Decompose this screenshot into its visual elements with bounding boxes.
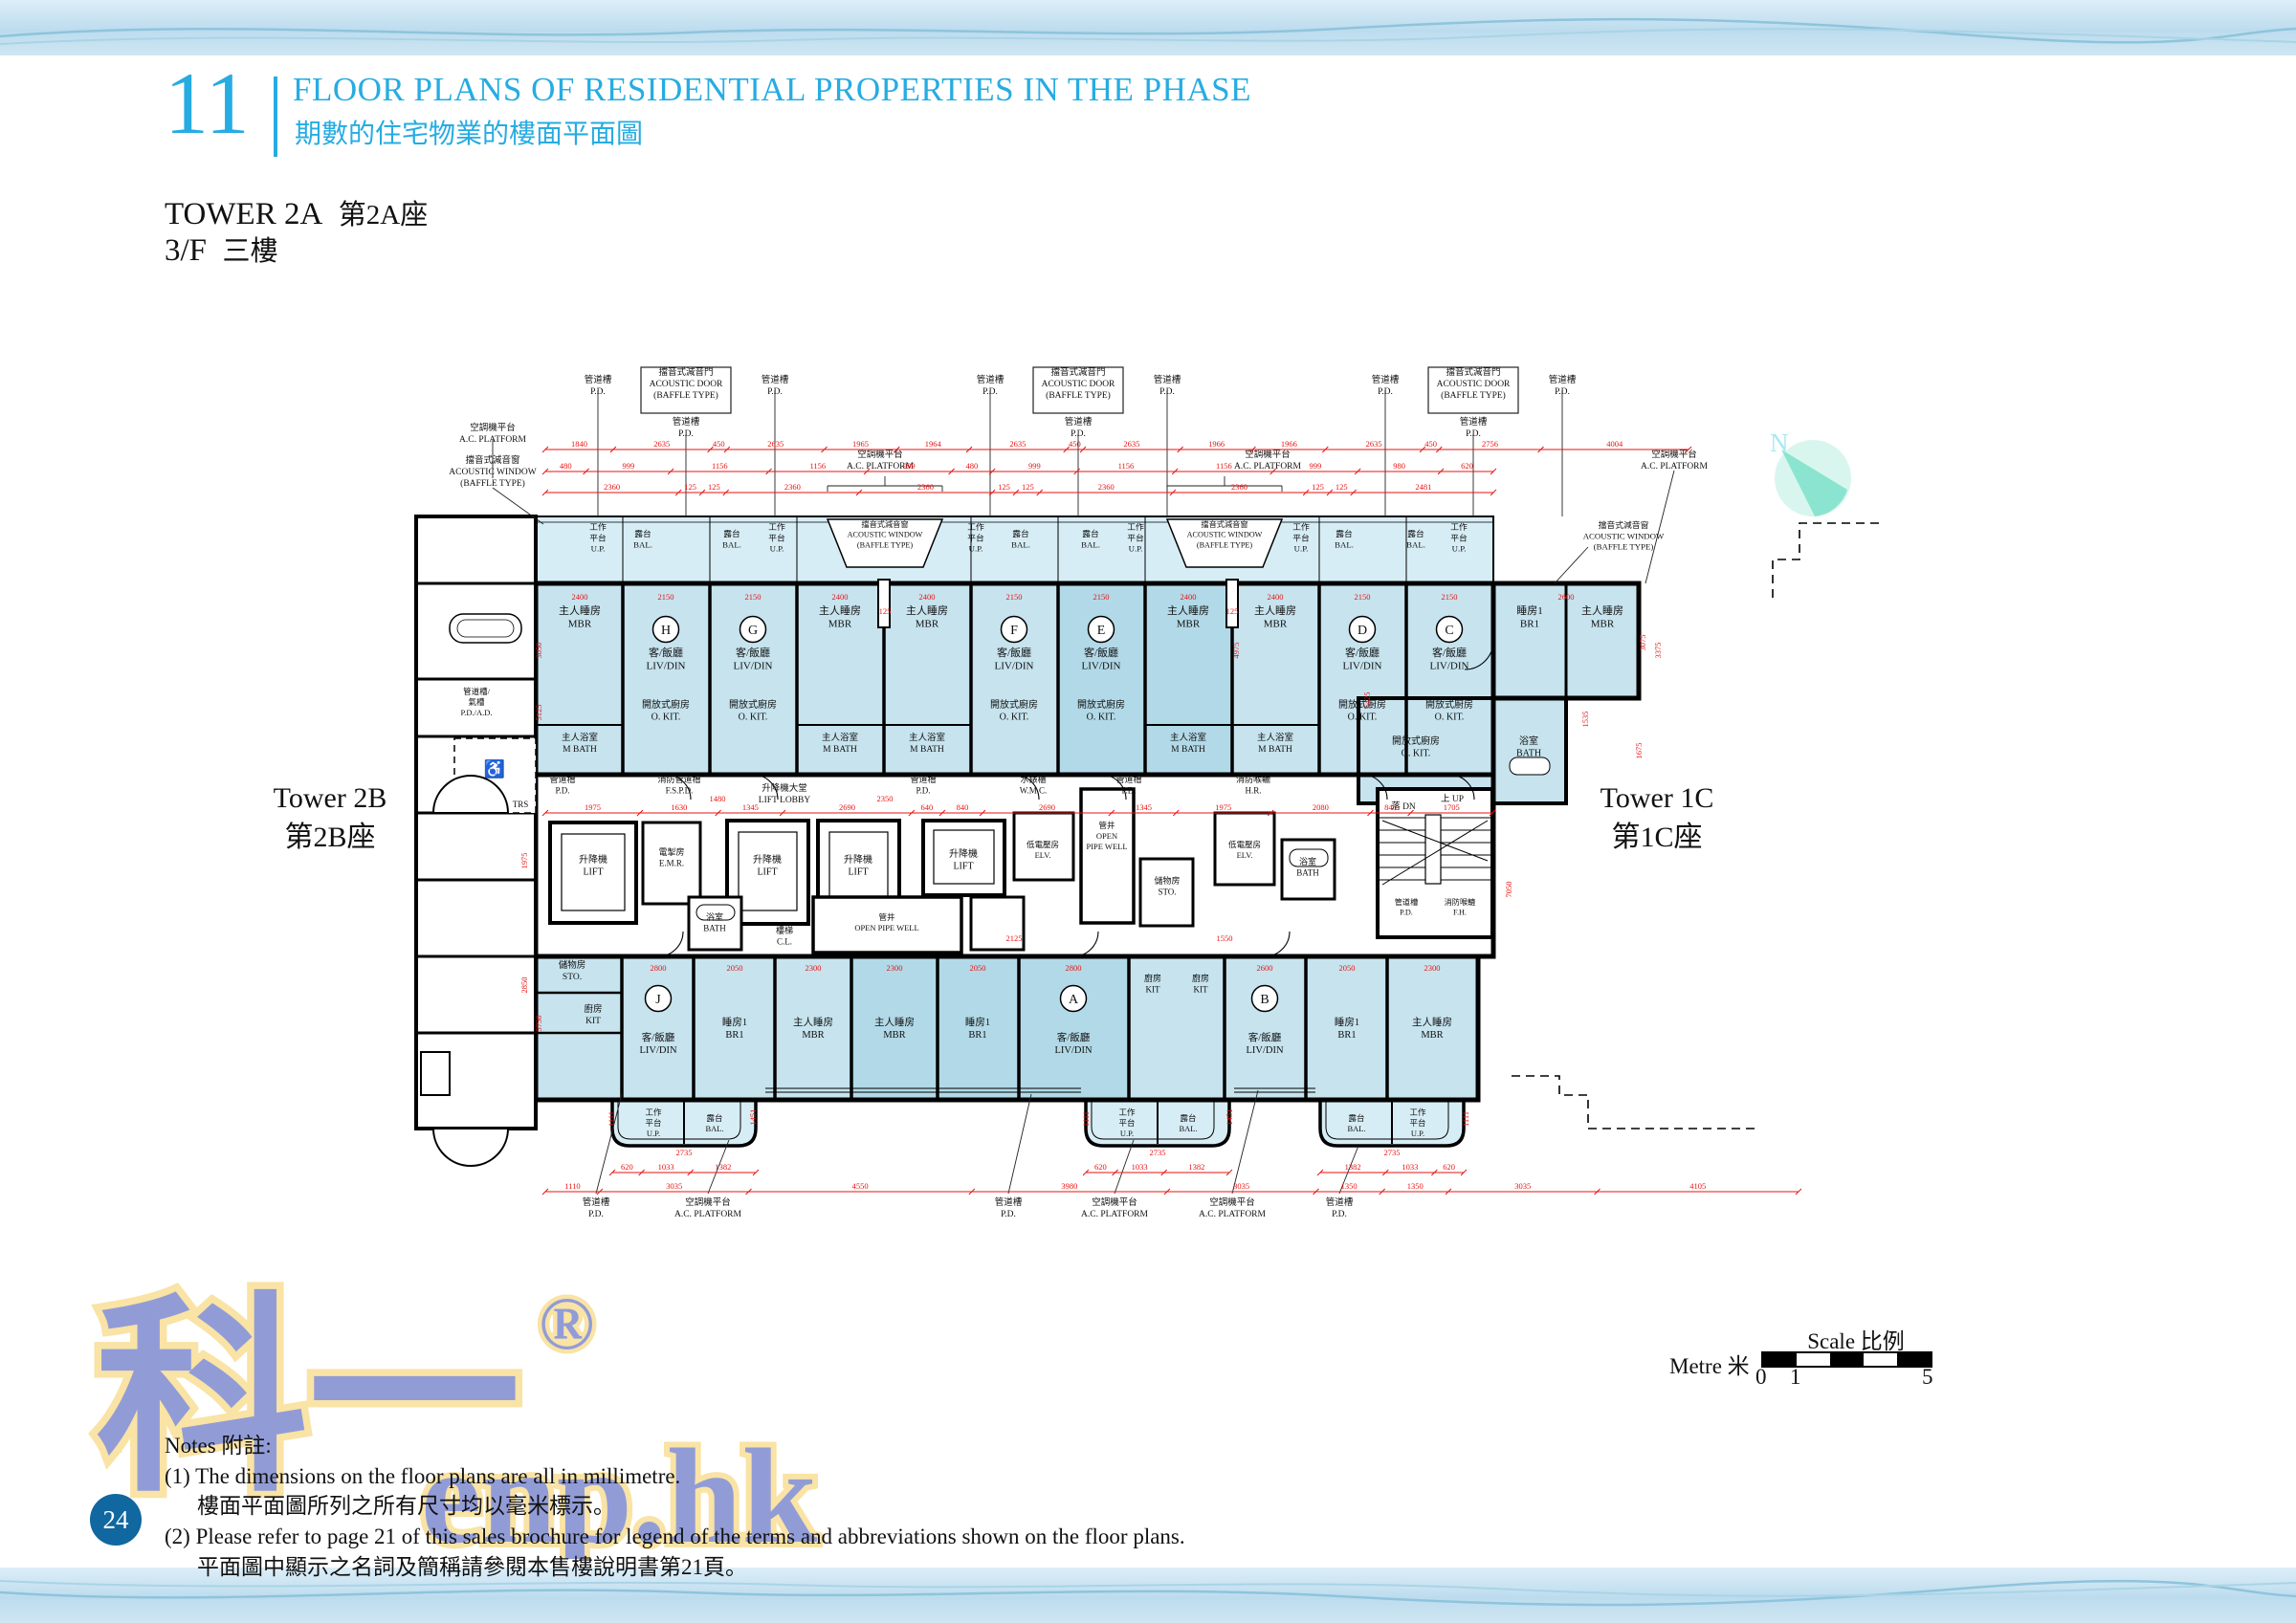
scale-tick-1: 1 <box>1790 1365 1801 1390</box>
dim: 2350 <box>877 794 894 803</box>
dim: 2150 <box>1355 592 1371 602</box>
dim: 1965 <box>852 439 869 449</box>
dim: 450 <box>1424 439 1437 449</box>
dim: 480 <box>965 461 978 471</box>
dim: 1033 <box>658 1162 674 1172</box>
dim: 125 <box>1312 482 1324 492</box>
unit-letter-G: G <box>748 624 758 638</box>
dim: 620 <box>621 1162 633 1172</box>
dim: 1033 <box>1402 1162 1418 1172</box>
dim: 2360 <box>1098 482 1115 492</box>
pd-callout: 管道槽P.D. <box>1372 374 1400 397</box>
floor-en: 3/F <box>165 233 207 268</box>
dim: 1345 <box>1136 802 1152 812</box>
room-label-livdin: 客/飯廳LIV/DIN <box>734 646 773 672</box>
tower-2b-label: Tower 2B 第2B座 <box>254 779 407 857</box>
dim: 1705 <box>1444 802 1460 812</box>
pd-callout: 管道槽P.D. <box>549 774 575 796</box>
dim: 1110 <box>564 1181 580 1191</box>
up-label: 工作平台U.P. <box>1409 1108 1426 1138</box>
up-label: 工作平台U.P. <box>967 521 984 554</box>
dim: 480 <box>560 461 572 471</box>
dim: 3035 <box>666 1181 682 1191</box>
header-divider <box>274 77 277 157</box>
dim: 2635 <box>653 439 670 449</box>
dim: 2360 <box>784 482 801 492</box>
dim: 2400 <box>832 592 849 602</box>
trs-label: TRS <box>513 800 529 809</box>
dim: 2150 <box>1442 592 1458 602</box>
dim: 2600 <box>1257 963 1273 973</box>
unit-letter-J: J <box>655 993 661 1007</box>
dim: 999 <box>622 461 634 471</box>
pd-callout: 管道槽P.D. <box>1154 374 1181 397</box>
notes-heading: Notes 附註: <box>165 1431 1185 1461</box>
pd-callout: 管道槽P.D. <box>1065 416 1093 439</box>
scale-ticks: 0 1 5 <box>1761 1365 1929 1390</box>
lift-label: 升降機LIFT <box>753 853 782 878</box>
dim: 7050 <box>1504 882 1513 898</box>
lift-label: 升降機LIFT <box>844 853 872 878</box>
unit-letter-B: B <box>1260 993 1269 1007</box>
tower-2b-outline <box>416 516 536 1166</box>
acoustic-door-callout: 擋音式減音門ACOUSTIC DOOR(BAFFLE TYPE) <box>650 366 723 401</box>
dim: 2635 <box>1366 439 1382 449</box>
dim: 1975 <box>585 802 601 812</box>
dim: 1975 <box>1215 802 1231 812</box>
dim: 2481 <box>1415 482 1431 492</box>
dim: 640 <box>921 802 934 812</box>
dim: 1480 <box>710 794 726 803</box>
page-number-badge: 24 <box>90 1494 142 1546</box>
dim: 2150 <box>658 592 674 602</box>
dim: 125 <box>998 482 1010 492</box>
pd-callout: 管道槽P.D. <box>762 374 789 397</box>
wmc-label: 水錶櫃W.M.C. <box>1020 774 1047 796</box>
dim: 2735 <box>676 1148 693 1157</box>
dim: 2360 <box>604 482 620 492</box>
dim: 1966 <box>1281 439 1297 449</box>
lift-lobby-label: 升降機大堂LIFT LOBBY <box>759 782 811 805</box>
dim: 1451 <box>1225 1109 1234 1126</box>
dim: 2400 <box>1268 592 1284 602</box>
dim: 1382 <box>1188 1162 1204 1172</box>
balconies <box>612 1100 1464 1146</box>
dim: 125 <box>684 482 696 492</box>
ac-platform-callout: 空調機平台A.C. PLATFORM <box>1641 449 1708 472</box>
up-label: 工作平台U.P. <box>1118 1108 1136 1138</box>
lift-label: 升降機LIFT <box>949 847 978 872</box>
dim: 1675 <box>1634 743 1644 759</box>
dim: 1550 <box>1217 933 1233 943</box>
dim: 2400 <box>572 592 588 602</box>
dim: 4550 <box>852 1181 869 1191</box>
dim: 999 <box>1028 461 1041 471</box>
bal-label: 露台BAL. <box>1347 1113 1365 1133</box>
watermark-registered-icon: ® <box>539 1282 594 1365</box>
pd-callout: 管道槽P.D. <box>1326 1196 1354 1219</box>
dim: 3035 <box>1233 1181 1249 1191</box>
dim: 2400 <box>919 592 936 602</box>
tower-2b-label-zh: 第2B座 <box>254 819 407 858</box>
dim: 1111 <box>607 1111 616 1127</box>
dim: 1382 <box>1345 1162 1361 1172</box>
dim: 125 <box>1022 482 1034 492</box>
dim: 1840 <box>571 439 587 449</box>
wheelchair-icon: ♿ <box>484 758 505 779</box>
dim: 2360 <box>1231 482 1247 492</box>
tower-name-en: TOWER 2A <box>165 197 322 231</box>
pd-callout: 管道槽P.D. <box>673 416 700 439</box>
dim: 1350 <box>1341 1181 1358 1191</box>
scale-tick-0: 0 <box>1755 1365 1767 1390</box>
dim: 999 <box>903 461 916 471</box>
hr-label: 消防喉轆H.R. <box>1236 774 1270 796</box>
acoustic-window-callout: 擋音式減音窗ACOUSTIC WINDOW(BAFFLE TYPE) <box>449 454 536 489</box>
dim: 1156 <box>1216 461 1232 471</box>
up-label: 工作平台U.P. <box>589 521 607 554</box>
dim: 1382 <box>715 1162 731 1172</box>
pd-callout: 管道槽P.D. <box>995 1196 1023 1219</box>
dim: 1535 <box>1580 712 1590 728</box>
tower-heading: TOWER 2A 第2A座 3/F 三樓 <box>165 197 428 270</box>
dim: 2756 <box>1482 439 1498 449</box>
note-line: (1) The dimensions on the floor plans ar… <box>165 1461 1185 1492</box>
dim: 1033 <box>1132 1162 1148 1172</box>
dim: 2360 <box>917 482 934 492</box>
dim: 2150 <box>745 592 762 602</box>
note-line: (2) Please refer to page 21 of this sale… <box>165 1522 1185 1552</box>
ac-platform-callout: 空調機平台A.C. PLATFORM <box>1199 1196 1266 1219</box>
dim: 5750 <box>534 1016 543 1032</box>
acoustic-door-callout: 擋音式減音門ACOUSTIC DOOR(BAFFLE TYPE) <box>1437 366 1511 401</box>
dim: 840 <box>1384 802 1397 812</box>
dim: 2050 <box>1339 963 1356 973</box>
dim: 2300 <box>806 963 822 973</box>
room-label-livdin: 客/飯廳LIV/DIN <box>647 646 686 672</box>
ac-platform-callout: 空調機平台A.C. PLATFORM <box>1234 449 1301 472</box>
dim: 620 <box>1094 1162 1107 1172</box>
section-number: 11 <box>165 59 250 147</box>
dim: 2150 <box>1093 592 1110 602</box>
room-label-bath: 浴室BATH <box>1516 735 1541 759</box>
page-title: FLOOR PLANS OF RESIDENTIAL PROPERTIES IN… <box>293 71 1251 109</box>
dim: 1111 <box>1081 1111 1091 1127</box>
pd-callout: 管道槽P.D. <box>977 374 1004 397</box>
dim: 4004 <box>1606 439 1623 449</box>
dim: 125 <box>1226 606 1239 616</box>
unit-letter-H: H <box>661 624 671 638</box>
acoustic-door-callout: 擋音式減音門ACOUSTIC DOOR(BAFFLE TYPE) <box>1042 366 1115 401</box>
dim: 1451 <box>748 1109 758 1126</box>
north-label: N <box>1770 428 1789 457</box>
dim: 4975 <box>1231 643 1241 659</box>
note-line: 樓面平面圖所列之所有尺寸均以毫米標示。 <box>165 1491 1185 1522</box>
ac-platform-callout: 空調機平台A.C. PLATFORM <box>459 422 526 445</box>
dim: 6425 <box>1362 692 1372 709</box>
dim: 2050 <box>970 963 986 973</box>
dim: 2800 <box>651 963 667 973</box>
dim: 2400 <box>1181 592 1197 602</box>
dim: 3050 <box>534 643 543 659</box>
dim: 2080 <box>1313 802 1329 812</box>
dim: 1156 <box>1118 461 1135 471</box>
dim: 1345 <box>742 802 759 812</box>
scale-tick-5: 5 <box>1922 1365 1933 1390</box>
dim: 620 <box>1443 1162 1455 1172</box>
dim: 2735 <box>1150 1148 1166 1157</box>
up-label: 工作平台U.P. <box>645 1108 662 1138</box>
dim: 2125 <box>1006 933 1023 943</box>
unit-letter-F: F <box>1010 624 1018 638</box>
top-decor-band <box>0 0 2296 57</box>
pd-callout: 管道槽P.D. <box>583 1196 610 1219</box>
tower-1c-label-zh: 第1C座 <box>1580 819 1733 858</box>
room-label-livdin: 客/飯廳LIV/DIN <box>995 646 1034 672</box>
dim: 1975 <box>519 853 529 869</box>
dim: 620 <box>1461 461 1473 471</box>
dim: 2635 <box>1123 439 1139 449</box>
pd-callout: 管道槽P.D. <box>1549 374 1577 397</box>
dim: 2800 <box>1066 963 1082 973</box>
up-label: 工作平台U.P. <box>768 521 785 554</box>
dim: 999 <box>1310 461 1322 471</box>
dim: 3075 <box>1638 635 1647 651</box>
dim: 2690 <box>839 802 855 812</box>
dim: 840 <box>957 802 969 812</box>
ac-platform-callout: 空調機平台A.C. PLATFORM <box>1081 1196 1148 1219</box>
page-number: 24 <box>103 1505 129 1535</box>
dim: 2690 <box>1039 802 1055 812</box>
dim: 1964 <box>925 439 942 449</box>
tower-name-zh: 第2A座 <box>339 200 428 230</box>
lift-label: 升降機LIFT <box>579 853 607 878</box>
ac-platform-callout: 空調機平台A.C. PLATFORM <box>674 1196 741 1219</box>
dim: 450 <box>1069 439 1081 449</box>
room-label-livdin: 客/飯廳LIV/DIN <box>1082 646 1121 672</box>
tower-1c-label: Tower 1C 第1C座 <box>1580 779 1733 857</box>
dim: 2600 <box>1558 592 1575 602</box>
scale-unit: Metre 米 <box>1669 1348 1750 1380</box>
dim: 450 <box>713 439 725 449</box>
dim: 3035 <box>1514 1181 1531 1191</box>
page-title-chinese: 期數的住宅物業的樓面平面圖 <box>295 113 643 151</box>
dim: 2735 <box>1384 1148 1401 1157</box>
scale-title: Scale 比例 <box>1770 1323 1942 1355</box>
dim: 1350 <box>1407 1181 1424 1191</box>
floor-zh: 三樓 <box>223 236 278 267</box>
notes: Notes 附註: (1) The dimensions on the floo… <box>165 1431 1185 1583</box>
tower-2b-label-en: Tower 2B <box>254 779 407 819</box>
dim: 4105 <box>1689 1181 1706 1191</box>
dim: 2635 <box>767 439 784 449</box>
dim: 3980 <box>1061 1181 1077 1191</box>
unit-letter-A: A <box>1069 993 1079 1007</box>
up-label: 工作平台U.P. <box>1127 521 1144 554</box>
pd-callout: 管道槽P.D. <box>910 774 936 796</box>
dim: 980 <box>1393 461 1405 471</box>
pd-callout: 管道槽P.D. <box>585 374 612 397</box>
dim: 2300 <box>887 963 903 973</box>
fspd-callout: 消防管道槽F.S.P.D. <box>657 774 700 796</box>
dim: 3375 <box>1653 643 1663 659</box>
dim: 5125 <box>534 705 543 721</box>
north-compass-icon: N <box>1770 428 1851 516</box>
up-label: 工作平台U.P. <box>1450 521 1468 554</box>
dim: 2300 <box>1424 963 1441 973</box>
dim: 125 <box>708 482 720 492</box>
dim: 2150 <box>1006 592 1023 602</box>
dim: 1156 <box>712 461 728 471</box>
room-label-livdin: 客/飯廳LIV/DIN <box>1430 646 1469 672</box>
bal-label: 露台BAL. <box>1179 1113 1197 1133</box>
unit-letter-D: D <box>1358 624 1367 638</box>
dim: 125 <box>1336 482 1348 492</box>
cl-label: 樓梯C.L. <box>776 925 793 947</box>
dim: 2850 <box>519 977 529 994</box>
dim: 1966 <box>1208 439 1225 449</box>
room-label-livdin: 客/飯廳LIV/DIN <box>1343 646 1382 672</box>
dim: 2635 <box>1009 439 1026 449</box>
tower-1c-label-en: Tower 1C <box>1580 779 1733 819</box>
up-label: 工作平台U.P. <box>1292 521 1310 554</box>
dim: 1111 <box>1461 1111 1470 1127</box>
note-line: 平面圖中顯示之名詞及簡稱請參閱本售樓說明書第21頁。 <box>165 1552 1185 1583</box>
bal-label: 露台BAL. <box>705 1113 723 1133</box>
pd-callout: 管道槽P.D. <box>1460 416 1488 439</box>
dim: 125 <box>879 606 892 616</box>
unit-letter-E: E <box>1097 624 1106 638</box>
dim: 1630 <box>671 802 687 812</box>
unit-letter-C: C <box>1445 624 1453 638</box>
dim: 2050 <box>727 963 743 973</box>
dim: 1156 <box>809 461 826 471</box>
